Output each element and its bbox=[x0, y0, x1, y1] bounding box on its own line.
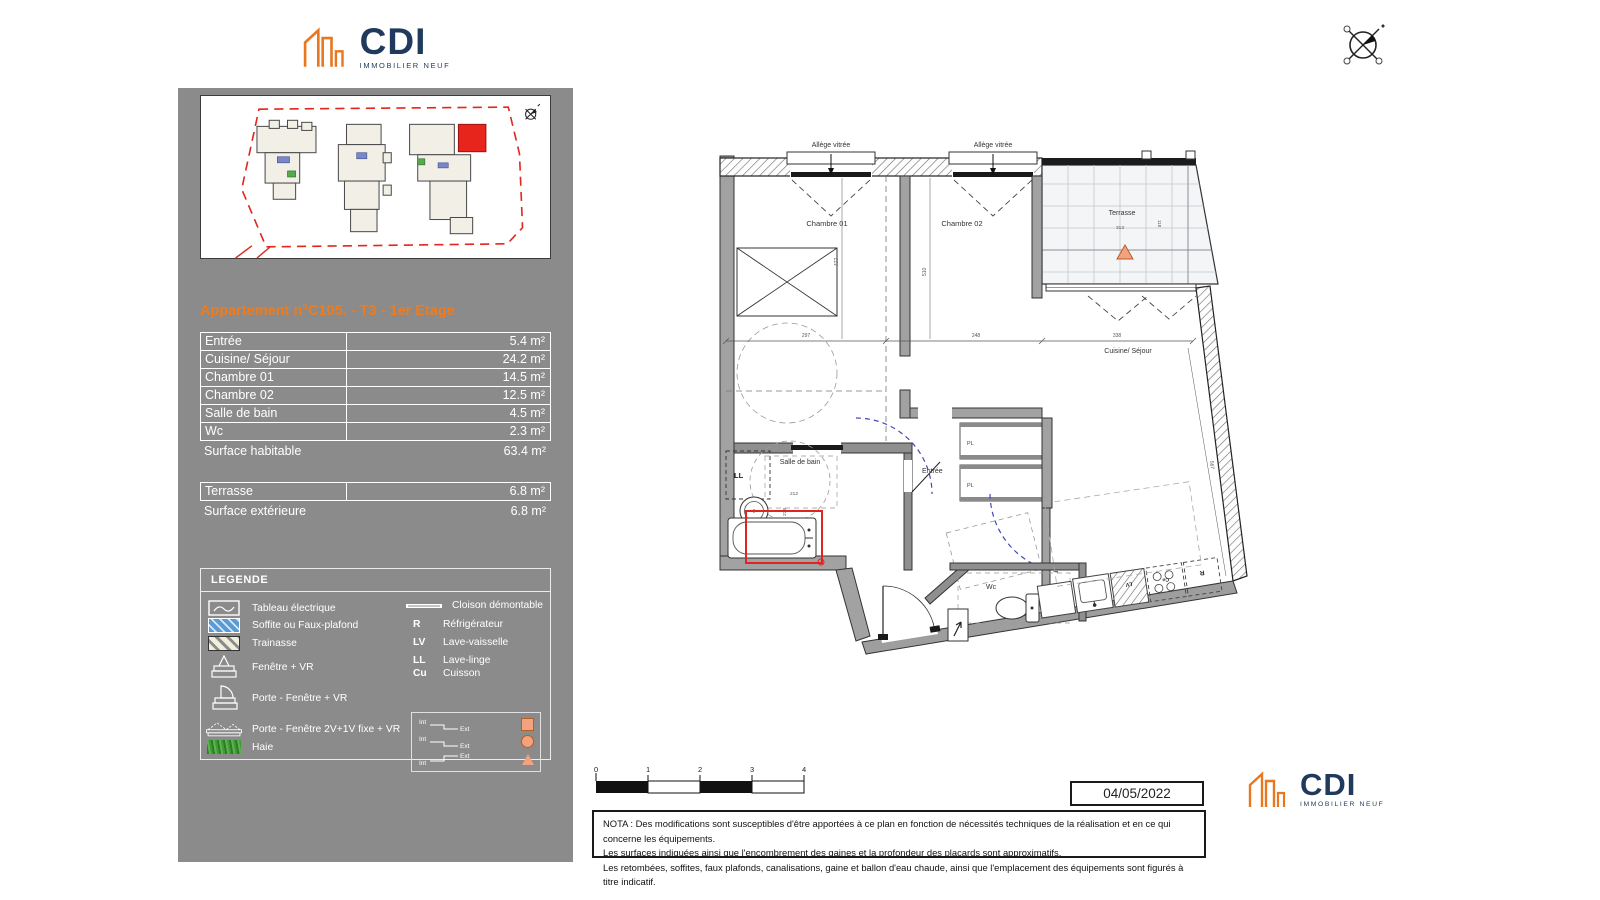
wall-left bbox=[720, 156, 734, 570]
svg-text:Int: Int bbox=[419, 736, 426, 743]
room-label: Wc bbox=[201, 423, 347, 440]
plan-date: 04/05/2022 bbox=[1103, 786, 1171, 801]
total-label: Surface habitable bbox=[204, 444, 301, 461]
ext-circle-marker bbox=[521, 735, 534, 748]
wall-chambres bbox=[900, 176, 910, 356]
room-area: 14.5 m² bbox=[347, 369, 550, 386]
wc-label: Wc bbox=[986, 584, 997, 591]
header-logo-area: CDI IMMOBILIER NEUF bbox=[178, 8, 573, 88]
wall-step-glyph: IntExt bbox=[418, 752, 476, 766]
legend-item: Cu Cuisson bbox=[413, 668, 480, 679]
legend-label: Haie bbox=[252, 742, 273, 753]
table-row: Chambre 0212.5 m² bbox=[200, 386, 551, 405]
legend-item: Fenêtre + VR bbox=[205, 654, 314, 680]
surface-habitable-row: Surface habitable 63.4 m² bbox=[200, 441, 551, 461]
wall-right bbox=[1196, 286, 1247, 581]
sdb-door-leaf bbox=[912, 462, 940, 492]
dim-477: 477 bbox=[834, 257, 840, 266]
terrasse-label: Terrasse bbox=[1109, 210, 1136, 217]
int-ext-key: IntExt IntExt IntExt bbox=[411, 712, 541, 772]
legend-label: Lave-linge bbox=[443, 655, 491, 666]
int-ext-row: IntExt bbox=[418, 752, 534, 766]
dishwasher: LV bbox=[1110, 568, 1149, 607]
electrical-panel bbox=[948, 609, 968, 641]
total-value: 6.8 m² bbox=[511, 504, 546, 521]
svg-text:Ext: Ext bbox=[460, 743, 470, 749]
legend-item: Tableau électrique bbox=[205, 600, 336, 616]
allege-label: Allège vitrée bbox=[812, 142, 851, 149]
legend-label: Soffite ou Faux-plafond bbox=[252, 620, 358, 631]
legend-abbr: R bbox=[413, 619, 433, 630]
legend-label: Porte - Fenêtre 2V+1V fixe + VR bbox=[252, 724, 400, 735]
legend-abbr: LL bbox=[413, 655, 433, 666]
window-vr-icon bbox=[205, 654, 243, 680]
door-window-vr-icon bbox=[205, 684, 243, 712]
mini-compass-icon bbox=[526, 104, 540, 119]
int-ext-row: IntExt bbox=[418, 718, 534, 732]
wall-cuisine-left bbox=[1042, 508, 1050, 588]
surface-exterieure-row: Surface extérieure 6.8 m² bbox=[200, 501, 551, 521]
hedge-icon bbox=[205, 740, 243, 754]
partition-line-icon bbox=[406, 600, 442, 611]
kitchen-sink bbox=[1073, 574, 1114, 613]
sdb-sliding-door bbox=[791, 445, 843, 450]
legend-item: R Réfrigérateur bbox=[413, 619, 503, 630]
cdi-logo: CDI IMMOBILIER NEUF bbox=[301, 26, 451, 70]
legend-label: Fenêtre + VR bbox=[252, 662, 314, 673]
table-row: Cuisine/ Séjour24.2 m² bbox=[200, 350, 551, 369]
pl-label: PL bbox=[967, 483, 974, 489]
scale-tick: 0 bbox=[594, 765, 598, 774]
site-plan-map bbox=[200, 95, 551, 259]
ext-square-marker bbox=[521, 718, 534, 731]
nota-line: NOTA : Des modifications sont susceptibl… bbox=[603, 817, 1195, 846]
areas-table: Entrée5.4 m² Cuisine/ Séjour24.2 m² Cham… bbox=[200, 332, 551, 441]
dim-228: 228 bbox=[782, 508, 788, 516]
svg-text:Int: Int bbox=[419, 760, 426, 766]
date-box: 04/05/2022 bbox=[1070, 781, 1204, 806]
legend-label: Trainasse bbox=[252, 638, 297, 649]
legend-item: Porte - Fenêtre 2V+1V fixe + VR bbox=[205, 718, 400, 740]
scale-bar: 0 1 2 3 4 bbox=[592, 764, 816, 800]
closet-pl-2: PL bbox=[960, 465, 1046, 501]
legend-item: Haie bbox=[205, 740, 273, 754]
cuisine-sejour-label: Cuisine/ Séjour bbox=[1104, 348, 1152, 355]
nota-box: NOTA : Des modifications sont susceptibl… bbox=[592, 810, 1206, 858]
site-plan-drawing bbox=[201, 96, 550, 258]
legend-abbr: Cu bbox=[413, 668, 433, 679]
r-label: R bbox=[1199, 569, 1205, 577]
room-label: Chambre 02 bbox=[201, 387, 347, 404]
legend-label: Tableau électrique bbox=[252, 603, 336, 614]
brand-name: CDI bbox=[1300, 772, 1356, 798]
room-area: 2.3 m² bbox=[347, 423, 550, 440]
total-value: 63.4 m² bbox=[504, 444, 546, 461]
cu-label: Cu bbox=[1162, 576, 1169, 583]
floor-plan: Allège vitrée Allège vitrée Terrasse 313… bbox=[690, 126, 1250, 671]
legend-box: LEGENDE Tableau électrique Soffite ou Fa… bbox=[200, 568, 551, 760]
table-row: Entrée5.4 m² bbox=[200, 332, 551, 351]
room-area: 4.5 m² bbox=[347, 405, 550, 422]
highlighted-unit bbox=[458, 124, 485, 151]
scale-tick: 4 bbox=[802, 765, 806, 774]
table-row: Salle de bain4.5 m² bbox=[200, 404, 551, 423]
toilet bbox=[996, 597, 1028, 619]
nota-line: Les surfaces indiquées ainsi que l'encom… bbox=[603, 846, 1195, 861]
brand-tagline: IMMOBILIER NEUF bbox=[360, 61, 451, 70]
total-label: Surface extérieure bbox=[204, 504, 306, 521]
legend-item: Soffite ou Faux-plafond bbox=[205, 618, 358, 633]
svg-text:Ext: Ext bbox=[460, 726, 470, 732]
room-label: Cuisine/ Séjour bbox=[201, 351, 347, 368]
room-area: 24.2 m² bbox=[347, 351, 550, 368]
wall-jog bbox=[836, 568, 870, 641]
dim-510: 510 bbox=[922, 267, 928, 276]
table-row: Wc2.3 m² bbox=[200, 422, 551, 441]
svg-text:Ext: Ext bbox=[460, 753, 470, 760]
table-row: Chambre 0114.5 m² bbox=[200, 368, 551, 387]
window-chambre01: Allège vitrée bbox=[787, 142, 875, 216]
legend-item: Cloison démontable bbox=[406, 600, 543, 611]
ext-triangle-marker bbox=[522, 754, 534, 765]
legend-abbr: LV bbox=[413, 637, 433, 648]
bathtub bbox=[728, 518, 816, 558]
legend-title: LEGENDE bbox=[201, 569, 550, 592]
terrasse-width-dim: 313 bbox=[1116, 225, 1124, 231]
cdi-building-icon bbox=[301, 26, 351, 70]
legend-item: Trainasse bbox=[205, 636, 297, 651]
room-label: Entrée bbox=[201, 333, 347, 350]
dim-338: 338 bbox=[1113, 333, 1122, 339]
terrasse-depth-dim: 118 bbox=[1157, 220, 1162, 228]
chambre02-label: Chambre 02 bbox=[941, 219, 982, 228]
legend-label: Porte - Fenêtre + VR bbox=[252, 693, 347, 704]
electrical-panel-icon bbox=[205, 600, 243, 616]
pl-label: PL bbox=[967, 441, 974, 447]
int-ext-row: IntExt bbox=[418, 735, 534, 749]
svg-text:Int: Int bbox=[419, 719, 426, 726]
cdi-building-icon bbox=[1247, 770, 1291, 810]
cabinet bbox=[1037, 581, 1075, 618]
wall-entree-cuisine bbox=[1042, 418, 1052, 508]
cdi-logo: CDI IMMOBILIER NEUF bbox=[1247, 770, 1384, 810]
turning-circle bbox=[737, 323, 837, 423]
window-chambre02: Allège vitrée bbox=[949, 142, 1037, 216]
sejour-dashed-zone bbox=[1045, 482, 1202, 587]
wall-step-glyph: IntExt bbox=[418, 735, 476, 749]
chambre-door-opening bbox=[918, 407, 952, 419]
sdb-label: Salle de bain bbox=[780, 459, 821, 466]
legend-item: LL Lave-linge bbox=[413, 655, 491, 666]
nota-line: Les retombées, soffites, faux plafonds, … bbox=[603, 861, 1195, 890]
legend-label: Lave-vaisselle bbox=[443, 637, 508, 648]
trainasse-icon bbox=[205, 636, 243, 651]
dim-297: 297 bbox=[802, 333, 811, 339]
dim-567: 567 bbox=[1208, 461, 1215, 470]
allege-label: Allège vitrée bbox=[974, 142, 1013, 149]
room-label: Chambre 01 bbox=[201, 369, 347, 386]
building-b bbox=[338, 124, 391, 231]
legend-label: Cloison démontable bbox=[452, 600, 543, 611]
room-area: 5.4 m² bbox=[347, 333, 550, 350]
dim-212: 212 bbox=[790, 491, 798, 497]
brand-tagline: IMMOBILIER NEUF bbox=[1300, 801, 1384, 808]
legend-label: Réfrigérateur bbox=[443, 619, 503, 630]
salle-de-bain-room: LL Salle de bain 212 228 bbox=[726, 441, 940, 570]
brand-name: CDI bbox=[360, 26, 427, 57]
scale-tick: 1 bbox=[646, 765, 650, 774]
room-area: 12.5 m² bbox=[347, 387, 550, 404]
apartment-title: Appartement n°C105. - T3 - 1er Etage bbox=[200, 303, 551, 319]
soffit-icon bbox=[205, 618, 243, 633]
wall-chambre02-right bbox=[1032, 176, 1042, 298]
chambre01-room: Chambre 01 bbox=[726, 176, 886, 441]
closet-pl-1: PL bbox=[960, 423, 1046, 459]
legend-item: LV Lave-vaisselle bbox=[413, 637, 508, 648]
door-window-2v1v-icon bbox=[205, 718, 243, 740]
ll-label: LL bbox=[734, 471, 744, 480]
compass-icon bbox=[1336, 16, 1392, 72]
room-label: Terrasse bbox=[201, 483, 347, 500]
scale-tick: 3 bbox=[750, 765, 754, 774]
dim-248: 248 bbox=[972, 333, 981, 339]
legend-item: Porte - Fenêtre + VR bbox=[205, 684, 347, 712]
info-panel: Appartement n°C105. - T3 - 1er Etage Ent… bbox=[178, 88, 573, 862]
exterior-table: Terrasse6.8 m² bbox=[200, 482, 551, 501]
entree-label: Entrée bbox=[922, 468, 943, 475]
chambre01-label: Chambre 01 bbox=[806, 219, 847, 228]
room-label: Salle de bain bbox=[201, 405, 347, 422]
room-area: 6.8 m² bbox=[347, 483, 550, 500]
table-row: Terrasse6.8 m² bbox=[200, 482, 551, 501]
scale-tick: 2 bbox=[698, 765, 702, 774]
wall-step-glyph: IntExt bbox=[418, 718, 476, 732]
terrasse-area: Terrasse 313 118 bbox=[1042, 151, 1218, 321]
wall-chambres-stub bbox=[900, 390, 910, 418]
footer-logo-area: CDI IMMOBILIER NEUF bbox=[1247, 770, 1384, 810]
legend-label: Cuisson bbox=[443, 668, 480, 679]
lv-label: LV bbox=[1125, 580, 1133, 587]
